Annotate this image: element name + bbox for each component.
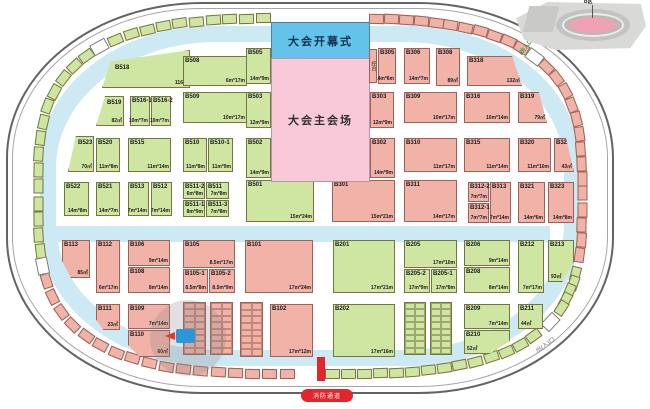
- booth-B513[interactable]: B5137m*14m: [128, 182, 149, 216]
- booth-dim-label: 93㎡: [551, 275, 562, 280]
- inset-highlight-zone: [569, 17, 617, 33]
- console-booth[interactable]: 控台: [369, 49, 377, 83]
- booth-B521[interactable]: B52114m*7m: [96, 182, 120, 216]
- booth-dim-label: 15m*21m: [371, 215, 393, 220]
- booth-dim-label: 132㎡: [507, 79, 520, 84]
- booth-B503[interactable]: B50312m*9m: [246, 92, 271, 128]
- booth-id-label: B509: [185, 94, 199, 100]
- booth-B212[interactable]: B2127m*17m: [518, 240, 544, 293]
- rim-booth-cell[interactable]: [33, 227, 44, 243]
- booth-dim-label: 52㎡: [467, 347, 478, 352]
- booth-id-label: B306: [406, 50, 420, 56]
- booth-dim-label: 14m*7m: [409, 77, 428, 82]
- booth-B201[interactable]: B20117m*21m: [333, 240, 395, 293]
- booth-id-label: B522: [66, 184, 80, 190]
- small-booth-strip: [404, 302, 426, 355]
- inset-zone-label: B区: [584, 0, 593, 5]
- main-venue-label: 大会主会场: [288, 112, 353, 128]
- booth-id-label: B108: [130, 269, 144, 275]
- rim-booth-cell[interactable]: [574, 247, 586, 263]
- booth-id-label: B521: [98, 184, 112, 190]
- booth-B508[interactable]: B5086m*17m: [183, 56, 247, 86]
- booth-dim-label: 11m*8m: [99, 165, 118, 170]
- booth-dim-label: 7m*14m: [490, 216, 509, 221]
- booth-dim-label: 89㎡: [447, 79, 458, 84]
- booth-B505[interactable]: B50514m*9m: [246, 48, 271, 84]
- booth-B105-1[interactable]: B105-18.5m*8m: [183, 269, 208, 293]
- booth-B205[interactable]: B20517m*10m: [404, 240, 457, 268]
- booth-dim-label: 7m*14m: [128, 209, 147, 214]
- booth-B205-2[interactable]: B205-217m*9m: [404, 269, 430, 293]
- booth-B511-2[interactable]: B511-26m*8m: [183, 182, 205, 199]
- booth-B211[interactable]: B21144㎡: [518, 304, 543, 329]
- booth-id-label: B501: [248, 182, 262, 188]
- rim-booth-cell[interactable]: [33, 211, 43, 226]
- rim-booth-cell[interactable]: [577, 186, 587, 201]
- booth-dim-label: 7m*7m: [471, 216, 487, 221]
- booth-id-label: B323: [550, 184, 564, 190]
- booth-B205-1[interactable]: B205-117m*8m: [431, 269, 457, 293]
- booth-id-label: B523: [78, 140, 92, 146]
- rim-booth-cell[interactable]: [576, 217, 586, 232]
- rim-booth-cell[interactable]: [420, 364, 436, 376]
- rim-booth-cell[interactable]: [413, 16, 429, 27]
- booth-dim-label: 82㎡: [111, 119, 122, 124]
- rim-booth-cell[interactable]: [239, 13, 254, 23]
- booth-B305[interactable]: B30514m*6m: [378, 48, 396, 84]
- opening-ceremony-area[interactable]: 大会开幕式: [271, 22, 370, 59]
- booth-B312-2[interactable]: B312-27m*7m: [468, 182, 489, 202]
- booth-B306[interactable]: B30614m*7m: [404, 48, 430, 84]
- booth-dim-label: 10m*14m: [486, 116, 508, 121]
- booth-B511-3[interactable]: B511-37m*8m: [206, 200, 229, 217]
- rim-booth-cell[interactable]: [576, 157, 587, 172]
- strip-cell[interactable]: [241, 343, 252, 350]
- rim-booth-cell[interactable]: [189, 16, 205, 27]
- booth-dim-label: 8m*9m: [187, 210, 203, 215]
- rim-booth-cell[interactable]: [210, 367, 226, 378]
- booth-dim-label: 14m*8m: [553, 216, 572, 221]
- booth-id-label: B308: [438, 50, 452, 56]
- booth-id-label: B512: [153, 184, 167, 190]
- booth-dim-label: 9m*14m: [489, 259, 508, 264]
- booth-dim-label: 44㎡: [521, 322, 532, 327]
- strip-cell[interactable]: [415, 348, 425, 354]
- booth-id-label: B110: [130, 332, 144, 338]
- booth-id-label: B311: [406, 182, 420, 188]
- fire-lane-bar: [317, 357, 325, 381]
- rim-booth-cell[interactable]: [575, 232, 586, 248]
- booth-dim-label: 7m*8m: [211, 210, 227, 215]
- booth-dim-label: 14m*9m: [374, 171, 393, 176]
- booth-id-label: B205: [406, 242, 420, 248]
- booth-dim-label: 10m*17m: [433, 116, 455, 121]
- booth-dim-label: 8.5m*9m: [212, 286, 233, 291]
- booth-id-label: B102: [272, 306, 286, 312]
- booth-id-label: B513: [130, 184, 144, 190]
- booth-B516-1[interactable]: B516-110m*7m: [130, 96, 150, 126]
- small-booth-strip: [240, 302, 263, 357]
- booth-B112[interactable]: B1126m*17m: [96, 240, 120, 293]
- booth-id-label: B106: [130, 242, 144, 248]
- booth-dim-label: 14m*9m: [250, 171, 269, 176]
- rim-booth-cell[interactable]: [388, 367, 404, 378]
- strip-cell[interactable]: [252, 336, 263, 343]
- strip-cell[interactable]: [252, 343, 263, 350]
- booth-dim-label: 14m*8m: [68, 209, 87, 214]
- booth-id-label: B113: [64, 242, 78, 248]
- booth-dim-label: 11m*14m: [486, 165, 508, 170]
- strip-cell[interactable]: [441, 348, 451, 354]
- booth-dim-label: 9m*14m: [149, 259, 168, 264]
- booth-id-label: B212: [520, 242, 534, 248]
- booth-dim-label: 7m*14m: [151, 209, 170, 214]
- booth-id-label: B516-1: [132, 98, 152, 104]
- opening-ceremony-label: 大会开幕式: [288, 33, 353, 49]
- rim-booth-cell[interactable]: [325, 369, 340, 379]
- booth-id-label: B210: [466, 332, 480, 338]
- booth-dim-label: 17m*10m: [433, 261, 455, 266]
- booth-id-label: B502: [248, 140, 262, 146]
- main-venue-area[interactable]: 大会主会场: [271, 58, 370, 182]
- booth-id-label: B208: [466, 269, 480, 275]
- booth-B310[interactable]: B31011m*17m: [404, 138, 457, 172]
- booth-id-label: B109: [130, 306, 144, 312]
- booth-id-label: B105-1: [185, 271, 205, 277]
- location-inset: B区: [512, 0, 650, 52]
- booth-dim-label: 10m*17m: [223, 116, 245, 121]
- booth-dim-label: 14m*9m: [250, 77, 269, 82]
- booth-id-label: B206: [466, 242, 480, 248]
- strip-cell[interactable]: [241, 310, 252, 317]
- strip-cell[interactable]: [252, 316, 263, 323]
- booth-id-label: B515: [130, 140, 144, 146]
- booth-dim-label: 17m*9m: [409, 286, 428, 291]
- booth-id-label: B310: [406, 140, 420, 146]
- booth-id-label: B519: [107, 100, 121, 106]
- booth-id-label: B101: [247, 242, 261, 248]
- strip-cell[interactable]: [405, 348, 415, 354]
- booth-B501[interactable]: B50115m*24m: [246, 180, 314, 222]
- booth-B106[interactable]: B1069m*14m: [128, 240, 170, 266]
- booth-B511-1[interactable]: B511-18m*9m: [183, 200, 205, 217]
- booth-dim-label: 17m*21m: [371, 286, 393, 291]
- strip-cell[interactable]: [241, 303, 252, 310]
- booth-id-label: B316: [466, 94, 480, 100]
- booth-id-label: B318: [469, 58, 483, 64]
- booth-dim-label: 14m*7m: [99, 209, 118, 214]
- booth-dim-label: 15m*24m: [290, 215, 312, 220]
- booth-dim-label: 11m*17m: [433, 165, 455, 170]
- rim-booth-cell[interactable]: [399, 15, 415, 26]
- strip-cell[interactable]: [241, 316, 252, 323]
- booth-B509[interactable]: B50910m*17m: [183, 92, 247, 123]
- booth-id-label: B209: [466, 306, 480, 312]
- booth-B502[interactable]: B50214m*9m: [246, 138, 271, 178]
- booth-dim-label: 85㎡: [77, 271, 88, 276]
- booth-dim-label: 17m*16m: [371, 350, 393, 355]
- booth-id-label: B302: [372, 140, 386, 146]
- booth-dim-label: 12m*9m: [373, 121, 392, 126]
- booth-B510[interactable]: B51011m*8m: [183, 138, 207, 172]
- booth-dim-label: 17m*8m: [436, 286, 455, 291]
- rim-booth-cell[interactable]: [404, 366, 420, 377]
- booth-B511[interactable]: B5117m*8m: [206, 182, 229, 199]
- booth-B308[interactable]: B30889㎡: [436, 48, 460, 86]
- booth-id-label: B105: [185, 242, 199, 248]
- booth-id-label: B211: [520, 306, 534, 312]
- rim-booth-cell[interactable]: [373, 368, 388, 378]
- fire-lane-label: 消防通道: [313, 391, 341, 400]
- rim-booth-cell[interactable]: [577, 202, 587, 217]
- booth-id-label: B205-2: [406, 271, 426, 277]
- booth-B316[interactable]: B31610m*14m: [464, 92, 510, 123]
- booth-dim-label: 6m*17m: [226, 79, 245, 84]
- booth-id-label: B315: [466, 140, 480, 146]
- booth-B320[interactable]: B32011m*10m: [518, 138, 551, 172]
- booth-dim-label: 23㎡: [107, 323, 118, 328]
- booth-id-label: B511-2: [185, 184, 204, 190]
- booth-B206[interactable]: B2069m*14m: [464, 240, 510, 266]
- fire-lane-badge: 消防通道: [301, 389, 353, 402]
- booth-B515[interactable]: B51511m*14m: [128, 138, 171, 172]
- booth-id-label: B301: [334, 182, 348, 188]
- booth-dim-label: 7m*14m: [489, 322, 508, 327]
- rim-booth-cell[interactable]: [575, 141, 586, 157]
- booth-B202[interactable]: B20217m*16m: [333, 304, 395, 357]
- booth-dim-label: 6m*8m: [187, 192, 203, 197]
- inset-pointer-line: [592, 5, 593, 18]
- booth-dim-label: 8.5m*17m: [210, 261, 233, 266]
- booth-id-label: B503: [248, 94, 262, 100]
- booth-dim-label: 14m*6m: [524, 216, 543, 221]
- booth-id-label: B511-3: [208, 202, 227, 208]
- booth-id-label: B313: [492, 184, 506, 190]
- booth-id-label: B202: [335, 306, 349, 312]
- booth-dim-label: 17m*24m: [289, 286, 311, 291]
- strip-cell[interactable]: [252, 349, 263, 356]
- booth-dim-label: 14m*17m: [433, 215, 455, 220]
- strip-cell[interactable]: [241, 323, 252, 330]
- rim-booth-cell[interactable]: [33, 163, 43, 178]
- booth-id-label: B518: [115, 65, 129, 71]
- booth-B522[interactable]: B52214m*8m: [64, 182, 89, 216]
- booth-dim-label: 17m*12m: [289, 350, 311, 355]
- booth-dim-label: 43㎡: [561, 165, 572, 170]
- booth-id-label: B510: [185, 140, 199, 146]
- booth-B302[interactable]: B30214m*9m: [370, 138, 395, 178]
- booth-B512[interactable]: B5127m*14m: [151, 182, 172, 216]
- booth-dim-label: 6m*17m: [99, 286, 118, 291]
- rim-booth-cell[interactable]: [280, 369, 295, 379]
- booth-B313[interactable]: B3137m*14m: [490, 182, 511, 223]
- rim-booth-cell[interactable]: [369, 13, 384, 23]
- booth-id-label: B321: [520, 184, 534, 190]
- booth-B311[interactable]: B31114m*17m: [404, 180, 457, 222]
- booth-id-label: B505: [248, 50, 262, 56]
- strip-cell[interactable]: [252, 310, 263, 317]
- rim-booth-cell[interactable]: [245, 368, 260, 378]
- booth-dim-label: 11m*8m: [186, 165, 205, 170]
- rim-booth-cell[interactable]: [436, 362, 452, 374]
- booth-B510-1[interactable]: B510-111m*9m: [208, 138, 233, 172]
- rim-booth-cell[interactable]: [33, 179, 43, 194]
- booth-dim-label: 7m*7m: [471, 195, 487, 200]
- booth-id-label: B320: [520, 140, 534, 146]
- booth-dim-label: 11m*9m: [212, 165, 231, 170]
- rim-booth-cell[interactable]: [34, 130, 46, 146]
- small-booth-strip: [430, 302, 452, 355]
- booth-id-label: B112: [98, 242, 112, 248]
- booth-B102[interactable]: B10217m*12m: [270, 304, 313, 357]
- rim-booth-cell[interactable]: [357, 369, 372, 379]
- booth-id-label: B309: [406, 94, 420, 100]
- strip-cell[interactable]: [252, 303, 263, 310]
- booth-id-label: B511: [208, 184, 222, 190]
- booth-B105[interactable]: B1058.5m*17m: [183, 240, 235, 268]
- booth-id-label: B111: [98, 306, 112, 312]
- booth-id-label: B520: [98, 140, 112, 146]
- booth-B315[interactable]: B31511m*14m: [464, 138, 510, 172]
- booth-id-label: B312-2: [470, 184, 490, 190]
- rim-booth-cell[interactable]: [33, 146, 44, 162]
- booth-dim-label: 8m*14m: [489, 286, 508, 291]
- booth-dim-label: 11m*10m: [527, 165, 549, 170]
- rim-booth-cell[interactable]: [33, 196, 43, 211]
- strip-cell[interactable]: [241, 336, 252, 343]
- rim-booth-cell[interactable]: [573, 126, 585, 142]
- booth-id-label: B105-2: [211, 271, 231, 277]
- booth-id-label: B312-1: [470, 205, 490, 211]
- rim-booth-cell[interactable]: [256, 13, 271, 23]
- booth-id-label: B319: [520, 94, 534, 100]
- rim-booth-cell[interactable]: [205, 15, 221, 26]
- booth-B101[interactable]: B10117m*24m: [245, 240, 313, 293]
- booth-id-label: B201: [335, 242, 349, 248]
- booth-id-label: B516-2: [153, 98, 173, 104]
- strip-cell[interactable]: [431, 348, 441, 354]
- booth-dim-label: 11m*14m: [147, 165, 169, 170]
- booth-B312-1[interactable]: B312-17m*7m: [468, 203, 489, 223]
- strip-cell[interactable]: [241, 349, 252, 356]
- booth-dim-label: 10m*7m: [150, 119, 169, 124]
- strip-cell[interactable]: [252, 323, 263, 330]
- booth-dim-label: 8.5m*8m: [185, 286, 206, 291]
- booth-dim-label: 12m*9m: [250, 121, 269, 126]
- booth-B108[interactable]: B1088m*14m: [128, 267, 170, 293]
- booth-B321[interactable]: B32114m*6m: [518, 182, 545, 223]
- booth-B323[interactable]: B32314m*8m: [548, 182, 574, 223]
- booth-dim-label: 7m*17m: [523, 286, 542, 291]
- booth-B303[interactable]: B30312m*9m: [370, 92, 394, 128]
- booth-B208[interactable]: B2088m*14m: [464, 267, 510, 293]
- booth-id-label: B510-1: [210, 140, 230, 146]
- booth-id-label: B303: [372, 94, 386, 100]
- booth-id-label: B305: [380, 50, 394, 56]
- booth-dim-label: 7m*8m: [211, 192, 227, 197]
- booth-dim-label: 8m*14m: [149, 286, 168, 291]
- booth-dim-label: 10m*7m: [129, 119, 148, 124]
- strip-cell[interactable]: [252, 330, 263, 337]
- booth-id-label: B205-1: [433, 271, 453, 277]
- booth-id-label: B508: [185, 58, 199, 64]
- booth-B209[interactable]: B2097m*14m: [464, 304, 510, 329]
- booth-dim-label: 70㎡: [81, 165, 92, 170]
- rim-booth-cell[interactable]: [341, 369, 356, 379]
- watermark-badge-icon: [176, 329, 195, 343]
- rim-booth-cell[interactable]: [384, 14, 399, 25]
- rim-booth-cell[interactable]: [228, 368, 243, 379]
- booth-B309[interactable]: B30910m*17m: [404, 92, 457, 123]
- booth-dim-label: 14m*6m: [375, 77, 394, 82]
- strip-cell[interactable]: [241, 330, 252, 337]
- booth-dim-label: 79㎡: [534, 116, 545, 121]
- rim-booth-cell[interactable]: [222, 14, 237, 25]
- booth-B301[interactable]: B30115m*21m: [332, 180, 395, 222]
- watermark-arrow-icon: [165, 332, 175, 340]
- booth-B520[interactable]: B52011m*8m: [96, 138, 120, 172]
- booth-id-label: B511-1: [185, 202, 204, 208]
- booth-B516-2[interactable]: B516-210m*7m: [151, 96, 171, 126]
- rim-booth-cell[interactable]: [262, 369, 277, 379]
- booth-id-label: B213: [550, 242, 564, 248]
- booth-B105-2[interactable]: B105-28.5m*9m: [209, 269, 235, 293]
